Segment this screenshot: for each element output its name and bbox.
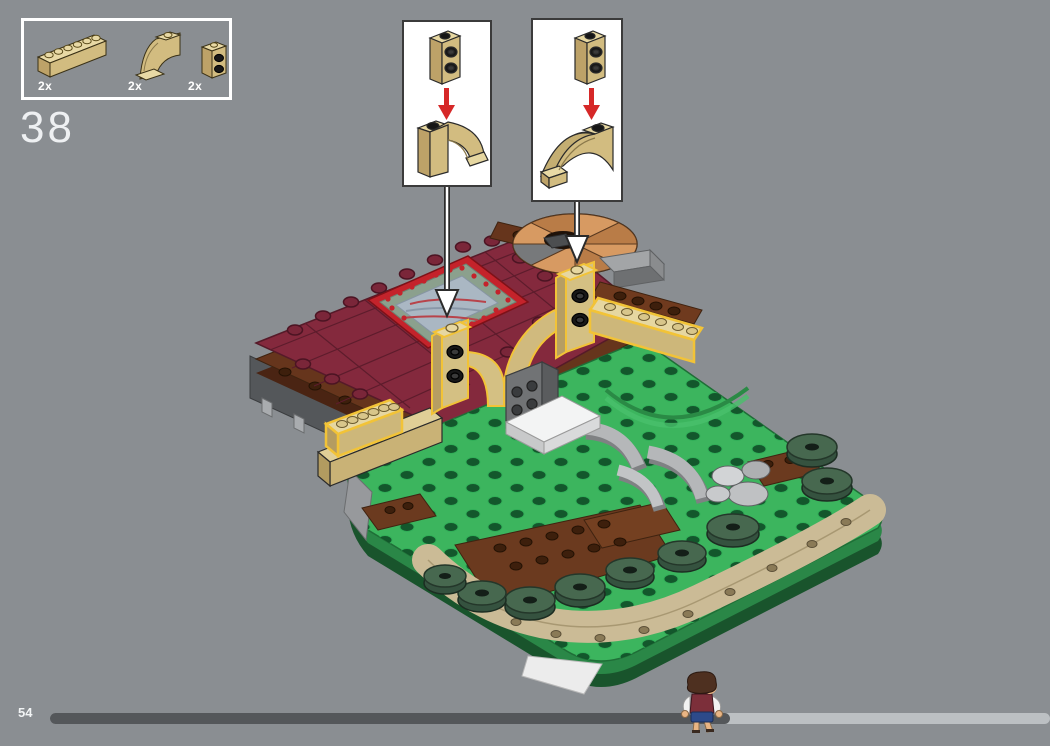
column-b	[556, 262, 596, 358]
gray-brick-stack	[506, 362, 558, 428]
progress-fill	[50, 713, 730, 724]
part-count-1: 2x	[38, 79, 52, 93]
red-arrow	[438, 88, 455, 120]
new-arch-small	[468, 352, 504, 406]
spiral-staircase	[490, 214, 648, 274]
tan-path	[428, 510, 870, 642]
roof-section	[256, 229, 650, 460]
leader-line-right	[566, 202, 588, 262]
minifigure-icon	[678, 670, 726, 734]
step-number: 38	[20, 103, 75, 153]
progress-bar[interactable]	[50, 713, 1050, 724]
white-wedge-piece	[522, 656, 602, 694]
part-count-2: 2x	[128, 79, 142, 93]
dirt-patches	[362, 448, 822, 608]
curved-plateau-edge	[606, 388, 748, 418]
side-studs-b	[572, 290, 588, 327]
new-brick-1x6-right	[590, 298, 702, 362]
tan-wall-assembly	[318, 262, 702, 486]
column-a	[432, 320, 470, 414]
red-arrow	[583, 88, 600, 120]
white-tile	[506, 396, 600, 454]
new-arch-large	[504, 300, 592, 406]
rock-cluster	[706, 461, 770, 506]
side-studs-a	[447, 346, 463, 383]
page-number: 54	[18, 705, 32, 720]
model-illustration	[0, 0, 1050, 746]
callout-left-diagram	[404, 22, 490, 185]
gray-curved-walls	[584, 428, 704, 510]
callout-right-diagram	[533, 20, 621, 200]
leader-line-left	[436, 187, 458, 316]
callout-box-left	[402, 20, 492, 187]
roof-tile-grid	[270, 236, 628, 422]
part-brick-1x6	[38, 35, 106, 77]
progress-minifigure[interactable]	[678, 670, 726, 734]
trees	[424, 434, 852, 620]
gray-slope-piece	[600, 250, 664, 288]
gray-edge-piece	[344, 470, 372, 540]
part-count-3: 2x	[188, 79, 202, 93]
parts-panel: 2x 2x 2x	[21, 18, 232, 100]
brown-ledge-right	[592, 282, 702, 324]
new-brick-1x6-left	[326, 400, 402, 456]
green-baseplate	[344, 340, 882, 687]
part-arch-brick	[136, 32, 180, 80]
part-brick-1x1-side-studs	[202, 42, 226, 78]
base-left-underside	[250, 356, 446, 488]
roof-studs	[288, 236, 571, 399]
instruction-page: 2x 2x 2x 38	[0, 0, 1050, 746]
rug-tile	[368, 256, 528, 348]
callout-box-right	[531, 18, 623, 202]
brown-ledge	[279, 368, 411, 432]
